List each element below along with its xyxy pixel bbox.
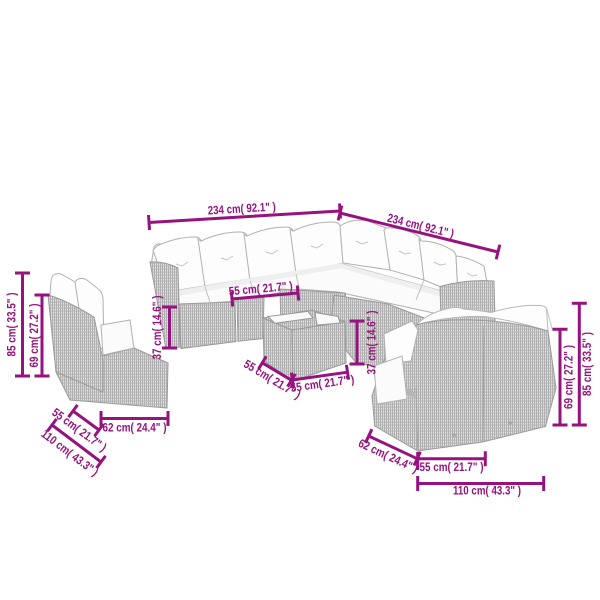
- svg-text:69 cm( 27.2" ): 69 cm( 27.2" ): [562, 345, 576, 409]
- svg-text:69 cm( 27.2" ): 69 cm( 27.2" ): [27, 304, 41, 368]
- svg-text:85 cm( 33.5" ): 85 cm( 33.5" ): [580, 332, 594, 396]
- svg-text:37 cm( 14.6" ): 37 cm( 14.6" ): [365, 311, 379, 375]
- svg-text:62 cm( 24.4" ): 62 cm( 24.4" ): [103, 421, 167, 435]
- svg-text:85 cm( 33.5" ): 85 cm( 33.5" ): [5, 293, 19, 357]
- svg-text:37 cm( 14.6" ): 37 cm( 14.6" ): [150, 296, 164, 360]
- svg-text:110 cm( 43.3" ): 110 cm( 43.3" ): [453, 484, 521, 498]
- svg-text:55 cm( 21.7" ): 55 cm( 21.7" ): [420, 460, 484, 474]
